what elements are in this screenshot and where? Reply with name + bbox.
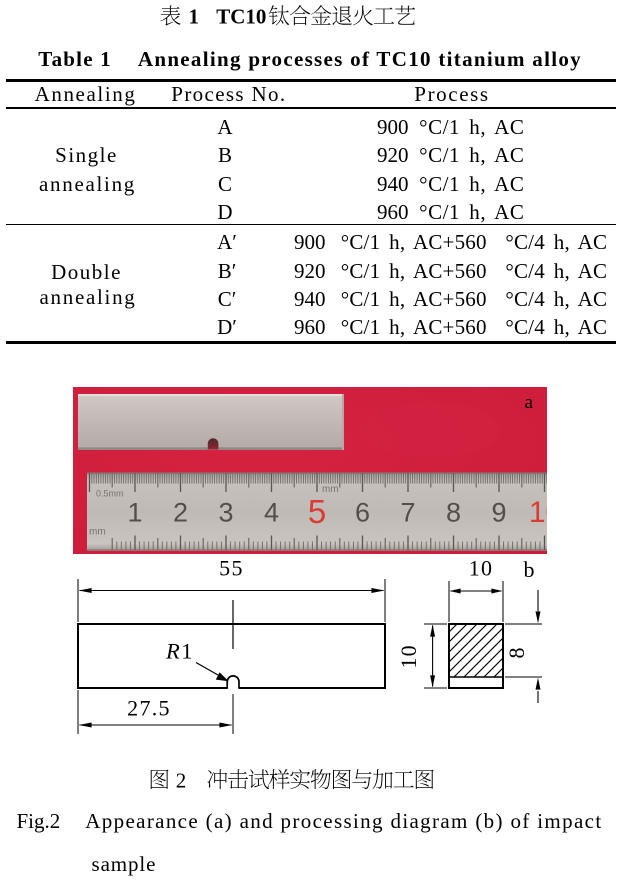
svg-text:2: 2 — [176, 768, 187, 792]
svg-text:8: 8 — [446, 498, 461, 528]
svg-text:55: 55 — [219, 556, 244, 581]
svg-text:2: 2 — [173, 498, 188, 528]
svg-text:7: 7 — [400, 498, 415, 528]
svg-text:1: 1 — [189, 5, 200, 29]
svg-text:R1: R1 — [165, 639, 194, 664]
svg-text:a: a — [525, 392, 534, 413]
svg-text:10: 10 — [529, 496, 547, 529]
svg-text:10: 10 — [396, 644, 421, 669]
svg-text:8: 8 — [504, 648, 529, 659]
svg-text:6: 6 — [355, 498, 370, 528]
svg-text:mm: mm — [322, 484, 339, 495]
svg-text:5: 5 — [308, 493, 326, 530]
svg-text:4: 4 — [264, 498, 279, 528]
svg-text:10: 10 — [469, 556, 494, 581]
svg-text:mm: mm — [89, 527, 106, 538]
svg-text:TC10: TC10 — [216, 5, 266, 29]
svg-text:3: 3 — [218, 498, 233, 528]
svg-text:27.5: 27.5 — [127, 696, 171, 721]
svg-text:1: 1 — [127, 498, 142, 528]
svg-text:0.5mm: 0.5mm — [96, 489, 124, 499]
svg-text:9: 9 — [491, 498, 506, 528]
svg-text:b: b — [524, 557, 535, 582]
